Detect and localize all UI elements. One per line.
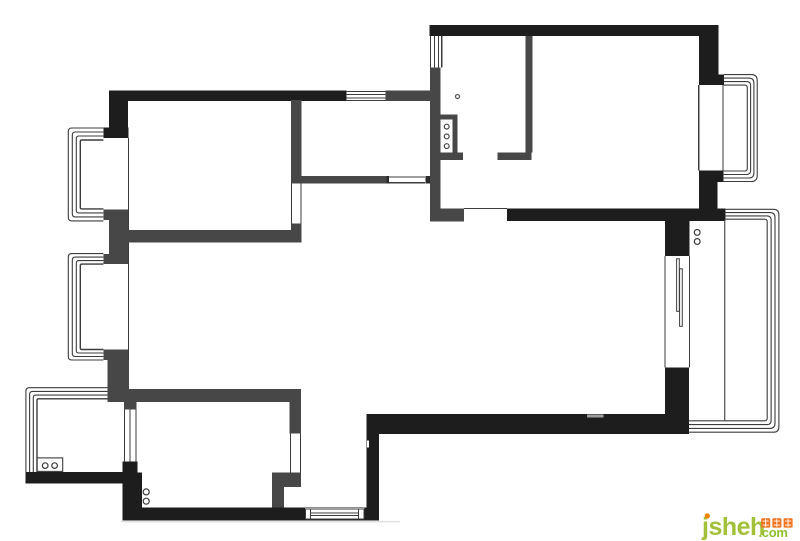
svg-text:.com: .com [759,525,788,540]
svg-text:jsheh: jsheh [701,513,765,541]
